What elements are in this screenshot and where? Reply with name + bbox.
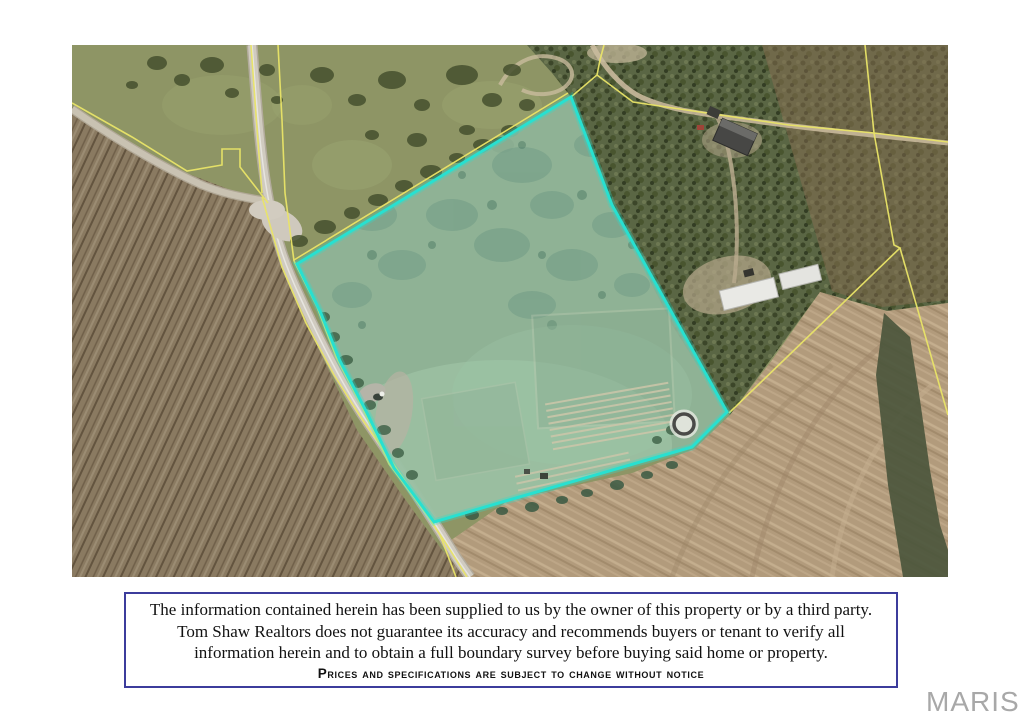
- disclaimer-box: The information contained herein has bee…: [124, 592, 898, 688]
- disclaimer-fine-print: Prices and specifications are subject to…: [126, 664, 896, 683]
- disclaimer-line-3: information herein and to obtain a full …: [126, 642, 896, 664]
- aerial-photo: [72, 45, 948, 577]
- red-truck: [697, 125, 704, 130]
- circle-marker: [671, 411, 697, 437]
- disclaimer-line-1: The information contained herein has bee…: [126, 599, 896, 621]
- disclaimer-line-2: Tom Shaw Realtors does not guarantee its…: [126, 621, 896, 643]
- listing-photo-page: The information contained herein has bee…: [0, 0, 1024, 721]
- maris-watermark: MARIS: [926, 686, 1020, 718]
